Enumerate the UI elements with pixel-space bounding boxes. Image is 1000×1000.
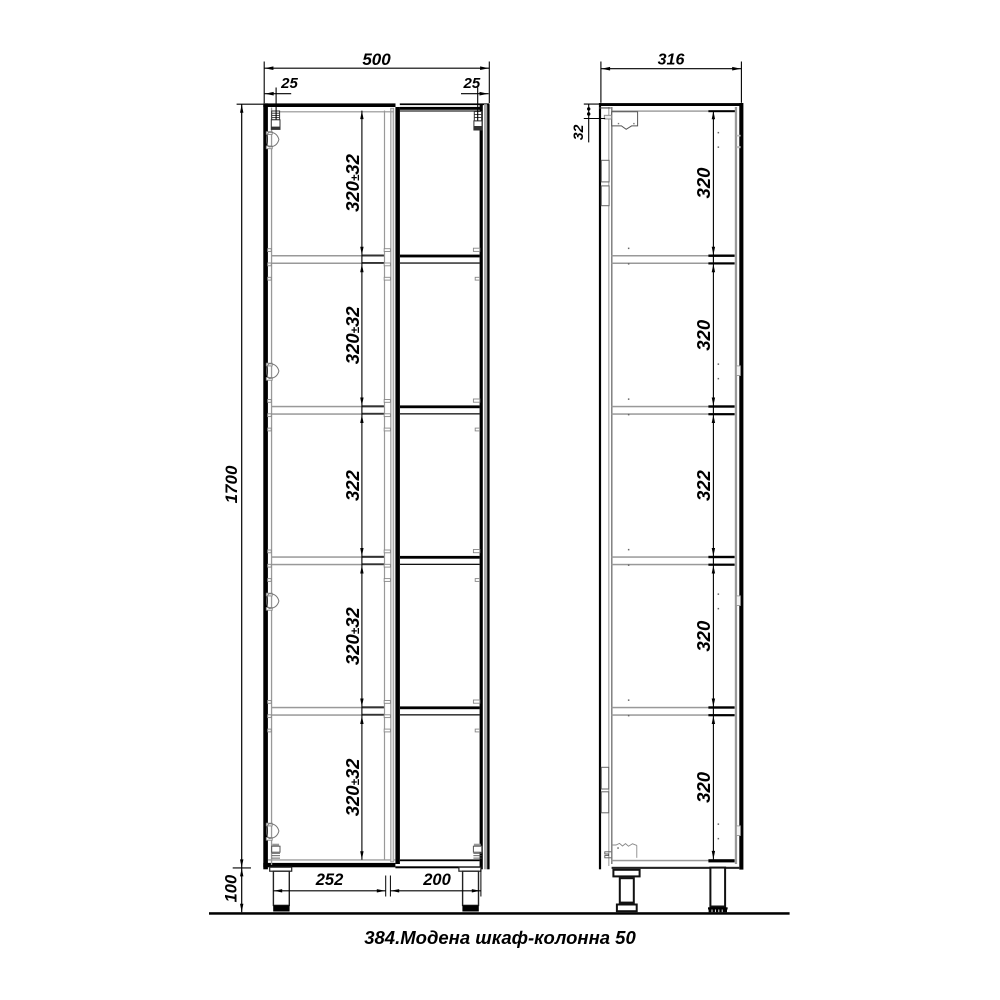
svg-text:320±32: 320±32 [342,306,363,364]
svg-text:320: 320 [693,771,714,803]
svg-text:320±32: 320±32 [342,153,363,211]
svg-text:200: 200 [422,871,451,889]
svg-text:320±32: 320±32 [342,758,363,816]
svg-text:322: 322 [342,469,363,501]
svg-text:322: 322 [693,469,714,501]
svg-text:320±32: 320±32 [342,607,363,665]
svg-text:32: 32 [570,124,586,140]
svg-text:1700: 1700 [222,465,241,503]
svg-text:25: 25 [463,75,481,92]
svg-text:25: 25 [280,75,298,92]
svg-text:316: 316 [658,52,685,69]
svg-text:500: 500 [362,50,391,69]
svg-text:384.Модена шкаф-колонна 50: 384.Модена шкаф-колонна 50 [364,927,636,948]
svg-text:252: 252 [315,871,344,889]
svg-text:320: 320 [693,319,714,351]
svg-text:100: 100 [223,874,241,902]
svg-text:320: 320 [693,167,714,199]
svg-text:320: 320 [693,620,714,652]
